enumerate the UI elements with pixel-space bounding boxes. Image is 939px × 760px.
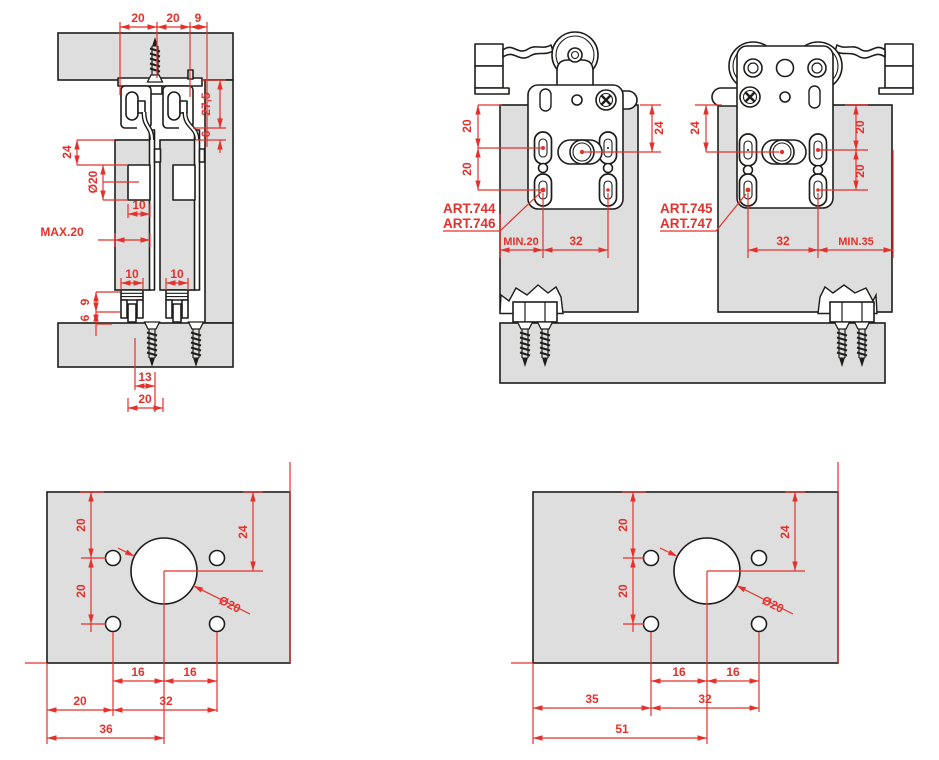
screw-head-icon bbox=[740, 87, 760, 107]
dim-label: 20 bbox=[616, 518, 630, 532]
carriage-left bbox=[528, 32, 637, 209]
dim-label: 16 bbox=[131, 665, 145, 679]
dim-label: 20 bbox=[138, 392, 152, 406]
hole-icon bbox=[777, 60, 794, 77]
hole-icon bbox=[744, 166, 753, 175]
drill-hole bbox=[106, 551, 121, 566]
bottom-rail bbox=[500, 323, 885, 383]
screw-head-icon bbox=[596, 90, 616, 110]
floor-guide-left bbox=[121, 290, 143, 322]
hardware-installation-drawing: 20 20 9 27,5 6 24 Ø20 10 MAX.20 10 10 bbox=[0, 0, 939, 760]
dim-label: 32 bbox=[159, 694, 173, 708]
dim-label: MIN.35 bbox=[838, 236, 873, 248]
dim-label: 24 bbox=[236, 525, 250, 539]
floor-guide-right bbox=[830, 302, 874, 322]
dim-label: 20 bbox=[73, 694, 87, 708]
track-bracket-right bbox=[835, 44, 913, 94]
bolt-icon bbox=[744, 59, 762, 77]
dim-label: 10 bbox=[132, 198, 146, 212]
hanger-nub-left bbox=[155, 149, 161, 162]
hole-icon bbox=[814, 166, 823, 175]
bolt-icon bbox=[808, 59, 826, 77]
dim-label: 20 bbox=[460, 119, 474, 133]
dim-label: 16 bbox=[183, 665, 197, 679]
dim-label: 20 bbox=[74, 518, 88, 532]
dim-label: 20 bbox=[74, 584, 88, 598]
dim-label: 6 bbox=[78, 314, 92, 321]
drill-hole bbox=[752, 617, 767, 632]
technical-drawing-page: 20 20 9 27,5 6 24 Ø20 10 MAX.20 10 10 bbox=[0, 0, 939, 760]
article-label: ART.744 bbox=[443, 201, 496, 216]
dim-label: 32 bbox=[776, 234, 790, 248]
dim-label: 51 bbox=[615, 722, 629, 736]
dim-label: 20 bbox=[460, 162, 474, 176]
dim-label: Ø20 bbox=[86, 170, 100, 193]
carriage-view: 20 20 24 MIN.20 32 ART.744 ART.746 24 20… bbox=[443, 32, 913, 383]
drill-hole bbox=[644, 551, 659, 566]
hole-icon bbox=[780, 92, 790, 102]
dim-label: 20 bbox=[616, 584, 630, 598]
dim-label: 9 bbox=[78, 298, 92, 305]
drill-template-left: 20 20 24 Ø20 16 16 20 32 36 bbox=[25, 462, 290, 744]
drill-hole bbox=[210, 551, 225, 566]
dim-label: 16 bbox=[726, 665, 740, 679]
dim-label: 24 bbox=[60, 145, 74, 159]
dim-label: 10 bbox=[125, 267, 139, 281]
dim-label: 24 bbox=[778, 525, 792, 539]
dim-label: 20 bbox=[853, 164, 867, 178]
dim-label: 20 bbox=[853, 120, 867, 134]
dim-label: 24 bbox=[652, 121, 666, 135]
dim-label: 32 bbox=[698, 692, 712, 706]
dim-label: 6 bbox=[199, 130, 213, 137]
dim-label: 20 bbox=[166, 11, 180, 25]
floor-guide-left bbox=[513, 302, 557, 322]
dim-label: 35 bbox=[585, 692, 599, 706]
drill-hole bbox=[644, 617, 659, 632]
drill-hole bbox=[210, 617, 225, 632]
dim-label: MAX.20 bbox=[40, 225, 84, 239]
dim-label: 10 bbox=[170, 267, 184, 281]
dim-label: 32 bbox=[569, 234, 583, 248]
dim-label: 13 bbox=[138, 370, 152, 384]
dim-label: 9 bbox=[195, 11, 202, 25]
article-label: ART.746 bbox=[443, 216, 496, 231]
dim-label: 20 bbox=[131, 11, 145, 25]
drill-hole bbox=[106, 617, 121, 632]
hole-icon bbox=[539, 164, 548, 173]
roller-tab bbox=[557, 60, 593, 86]
floor-guide-right bbox=[166, 290, 188, 322]
door-hole-right bbox=[173, 165, 195, 200]
article-label: ART.745 bbox=[660, 201, 713, 216]
dim-label: 16 bbox=[672, 665, 686, 679]
dim-label: 24 bbox=[688, 121, 702, 135]
hole-icon bbox=[572, 95, 582, 105]
dim-label: 36 bbox=[99, 722, 113, 736]
drill-hole bbox=[752, 551, 767, 566]
slot-icon bbox=[740, 134, 757, 166]
bottom-board bbox=[58, 323, 233, 367]
dim-label: MIN.20 bbox=[503, 236, 538, 248]
drill-template-right: 20 20 24 Ø20 16 16 35 32 51 bbox=[511, 462, 838, 744]
dim-label: 27,5 bbox=[199, 92, 213, 116]
article-label: ART.747 bbox=[660, 216, 713, 231]
section-view: 20 20 9 27,5 6 24 Ø20 10 MAX.20 10 10 bbox=[40, 11, 233, 412]
hole-icon bbox=[604, 164, 613, 173]
hanger-nub-right bbox=[200, 149, 205, 162]
